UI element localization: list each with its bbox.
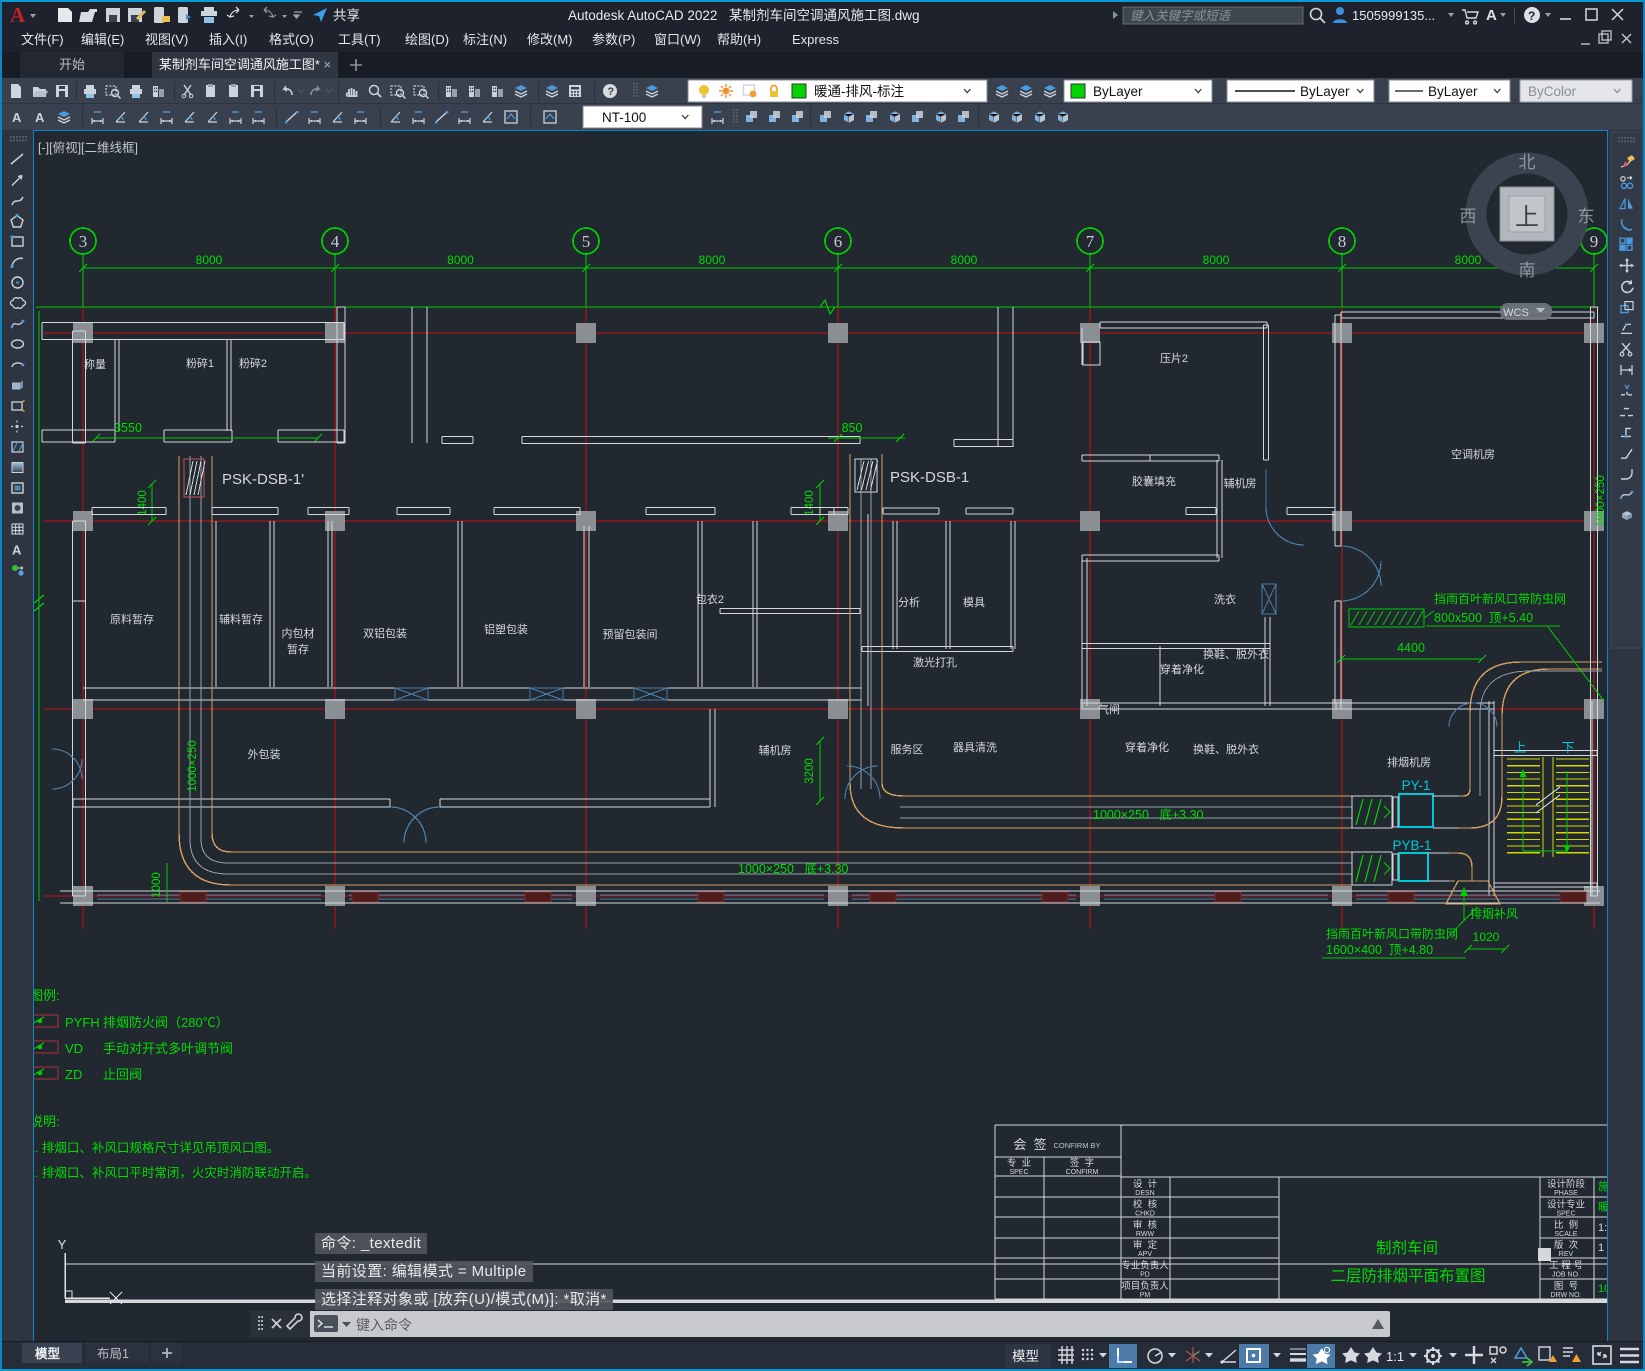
svg-text:模型: 模型 bbox=[35, 1346, 61, 1361]
svg-text:分析: 分析 bbox=[898, 595, 920, 609]
svg-text:ByLayer: ByLayer bbox=[1093, 84, 1143, 99]
svg-text:NT-100: NT-100 bbox=[602, 110, 646, 125]
svg-text:Autodesk AutoCAD 2022: Autodesk AutoCAD 2022 bbox=[568, 8, 717, 23]
svg-text:图例:: 图例: bbox=[34, 988, 60, 1003]
svg-text:1400: 1400 bbox=[137, 490, 149, 516]
svg-text:SPEC: SPEC bbox=[1009, 1169, 1028, 1176]
svg-text:1:: 1: bbox=[1598, 1222, 1607, 1234]
svg-text:8000: 8000 bbox=[196, 253, 223, 267]
svg-text:A: A bbox=[12, 543, 22, 558]
svg-text:ByLayer: ByLayer bbox=[1300, 84, 1350, 99]
svg-text:粉碎1: 粉碎1 bbox=[186, 356, 214, 370]
svg-text:1400: 1400 bbox=[804, 490, 816, 516]
svg-text:气闸: 气闸 bbox=[1098, 702, 1120, 716]
svg-text:3200: 3200 bbox=[804, 758, 816, 784]
svg-text:上: 上 bbox=[1513, 740, 1526, 755]
svg-text:ByColor: ByColor bbox=[1528, 84, 1577, 99]
svg-text:1505999135...: 1505999135... bbox=[1352, 8, 1435, 23]
svg-text:PSK-DSB-1: PSK-DSB-1 bbox=[890, 469, 969, 486]
svg-text:二层防排烟平面布置图: 二层防排烟平面布置图 bbox=[1330, 1267, 1485, 1285]
svg-text:?: ? bbox=[607, 86, 614, 98]
svg-text:800x500 顶+5.40: 800x500 顶+5.40 bbox=[1434, 611, 1533, 625]
svg-text:西: 西 bbox=[1460, 207, 1477, 226]
svg-text:说明:: 说明: bbox=[34, 1114, 60, 1129]
svg-text:CHKD: CHKD bbox=[1135, 1210, 1155, 1217]
svg-text:8000: 8000 bbox=[951, 253, 978, 267]
svg-text:8000: 8000 bbox=[1455, 253, 1482, 267]
svg-text:会 签: 会 签 bbox=[1013, 1137, 1046, 1152]
svg-text:键入关键字或短语: 键入关键字或短语 bbox=[1130, 9, 1233, 23]
svg-text:A: A bbox=[12, 110, 22, 125]
svg-text:洗衣: 洗衣 bbox=[1214, 592, 1236, 606]
svg-text:东: 东 bbox=[1578, 207, 1595, 226]
svg-text:A: A bbox=[10, 3, 26, 27]
svg-text:1600×400 顶+4.80: 1600×400 顶+4.80 bbox=[1326, 943, 1433, 957]
svg-text:辅料暂存: 辅料暂存 bbox=[219, 612, 263, 626]
svg-text:压片2: 压片2 bbox=[1160, 352, 1188, 365]
svg-text:REV: REV bbox=[1559, 1251, 1574, 1258]
svg-text:CONFIRM: CONFIRM bbox=[1066, 1169, 1099, 1176]
svg-text:1000×250 底+3.30: 1000×250 底+3.30 bbox=[1093, 807, 1204, 822]
svg-text:工 程 号: 工 程 号 bbox=[1549, 1261, 1583, 1272]
svg-text:专业负责人: 专业负责人 bbox=[1121, 1260, 1169, 1272]
svg-text:比 例: 比 例 bbox=[1554, 1219, 1578, 1231]
svg-text:3550: 3550 bbox=[114, 421, 142, 435]
svg-text:PD: PD bbox=[1140, 1272, 1150, 1279]
svg-text:服务区: 服务区 bbox=[891, 743, 924, 756]
svg-text:Y: Y bbox=[58, 1237, 67, 1252]
svg-text:6: 6 bbox=[834, 232, 843, 251]
svg-text:北: 北 bbox=[1519, 153, 1536, 172]
svg-text:审 核: 审 核 bbox=[1133, 1219, 1158, 1231]
svg-text:专 业: 专 业 bbox=[1007, 1157, 1031, 1169]
svg-text:ZD: ZD bbox=[65, 1067, 82, 1082]
svg-text:手动对开式多叶调节阀: 手动对开式多叶调节阀 bbox=[103, 1041, 233, 1056]
svg-text:某制剂车间空调通风施工图.dwg: 某制剂车间空调通风施工图.dwg bbox=[729, 7, 920, 23]
svg-text:挡雨百叶新风口带防虫网: 挡雨百叶新风口带防虫网 bbox=[1326, 926, 1458, 941]
svg-text:[-][俯视][二维线框]: [-][俯视][二维线框] bbox=[38, 140, 138, 155]
svg-text:JOB NO.: JOB NO. bbox=[1552, 1272, 1580, 1279]
svg-text:南: 南 bbox=[1519, 261, 1536, 280]
svg-text:穿着净化: 穿着净化 bbox=[1160, 662, 1204, 676]
svg-text:?: ? bbox=[1528, 9, 1535, 23]
svg-text:RWW: RWW bbox=[1136, 1231, 1155, 1238]
svg-text:穿着净化: 穿着净化 bbox=[1125, 740, 1169, 754]
svg-text:称量: 称量 bbox=[84, 357, 106, 371]
svg-text:下: 下 bbox=[1561, 740, 1574, 755]
svg-text:止回阀: 止回阀 bbox=[103, 1067, 142, 1082]
svg-text:包衣2: 包衣2 bbox=[696, 592, 724, 606]
svg-text:VD: VD bbox=[65, 1041, 83, 1056]
svg-text:9: 9 bbox=[1590, 232, 1599, 251]
svg-text:换鞋、脱外衣: 换鞋、脱外衣 bbox=[1203, 647, 1269, 661]
svg-text:胶囊填充: 胶囊填充 bbox=[1132, 474, 1176, 488]
svg-text:4: 4 bbox=[331, 232, 340, 251]
svg-text:DRW NO.: DRW NO. bbox=[1551, 1292, 1582, 1299]
svg-text:8: 8 bbox=[1338, 232, 1347, 251]
svg-text:DESN: DESN bbox=[1135, 1190, 1154, 1197]
svg-text:1: 1 bbox=[1598, 1242, 1604, 1254]
svg-text:8000: 8000 bbox=[1203, 253, 1230, 267]
svg-text:激光打孔: 激光打孔 bbox=[913, 655, 957, 669]
svg-text:850: 850 bbox=[842, 421, 863, 435]
svg-text:1000×250 底+3.30: 1000×250 底+3.30 bbox=[738, 861, 849, 876]
svg-text:制剂车间: 制剂车间 bbox=[1376, 1239, 1438, 1257]
svg-text:辅机房: 辅机房 bbox=[1224, 476, 1257, 490]
svg-text:PY-1: PY-1 bbox=[1402, 778, 1431, 793]
svg-text:设计专业: 设计专业 bbox=[1547, 1198, 1585, 1210]
svg-text:排烟补风: 排烟补风 bbox=[1470, 907, 1518, 921]
svg-text:布局1: 布局1 bbox=[97, 1347, 129, 1361]
svg-text:PYB-1: PYB-1 bbox=[1392, 838, 1431, 853]
svg-text:换鞋、脱外衣: 换鞋、脱外衣 bbox=[1193, 742, 1259, 756]
svg-text:设 计: 设 计 bbox=[1133, 1178, 1158, 1190]
svg-text:铝塑包装: 铝塑包装 bbox=[484, 622, 528, 636]
svg-text:模型: 模型 bbox=[1012, 1349, 1039, 1364]
svg-text:签 字: 签 字 bbox=[1070, 1157, 1094, 1169]
svg-text:排烟防火阀（280℃）: 排烟防火阀（280℃） bbox=[103, 1015, 229, 1030]
svg-text:5: 5 bbox=[582, 232, 591, 251]
svg-text:暖: 暖 bbox=[1598, 1200, 1607, 1213]
svg-text:7: 7 bbox=[1086, 232, 1095, 251]
svg-text:A: A bbox=[1486, 7, 1497, 24]
svg-text:项目负责人: 项目负责人 bbox=[1121, 1280, 1169, 1292]
svg-text:挡雨百叶新风口带防虫网: 挡雨百叶新风口带防虫网 bbox=[1434, 591, 1566, 606]
svg-text:WCS: WCS bbox=[1503, 307, 1529, 319]
svg-text:SCALE: SCALE bbox=[1555, 1231, 1578, 1238]
svg-text:8000: 8000 bbox=[447, 253, 474, 267]
svg-text:暂存: 暂存 bbox=[287, 642, 309, 656]
svg-text:辅机房: 辅机房 bbox=[759, 743, 792, 757]
svg-text:内包材: 内包材 bbox=[282, 626, 315, 640]
svg-text:CONFIRM BY: CONFIRM BY bbox=[1053, 1141, 1100, 1150]
svg-text:设计阶段: 设计阶段 bbox=[1547, 1178, 1586, 1190]
svg-text:施: 施 bbox=[1598, 1180, 1607, 1193]
svg-text:4400: 4400 bbox=[1397, 641, 1425, 655]
svg-text:PM: PM bbox=[1140, 1292, 1151, 1299]
svg-text:1. 排烟口、补风口规格尺寸详见吊顶风口图。: 1. 排烟口、补风口规格尺寸详见吊顶风口图。 bbox=[34, 1140, 279, 1155]
svg-text:排烟机房: 排烟机房 bbox=[1387, 755, 1431, 769]
svg-text:上: 上 bbox=[1515, 204, 1539, 231]
svg-text:8000: 8000 bbox=[699, 253, 726, 267]
svg-text:模具: 模具 bbox=[963, 596, 985, 609]
svg-text:图 号: 图 号 bbox=[1554, 1281, 1578, 1292]
svg-text:粉碎2: 粉碎2 bbox=[239, 356, 267, 370]
svg-text:暖通-排风-标注: 暖通-排风-标注 bbox=[814, 84, 904, 99]
svg-text:APV: APV bbox=[1138, 1251, 1152, 1258]
svg-text:SPEC: SPEC bbox=[1556, 1210, 1575, 1217]
svg-text:1000×250: 1000×250 bbox=[187, 740, 199, 792]
svg-text:原料暂存: 原料暂存 bbox=[110, 612, 154, 626]
svg-text:2. 排烟口、补风口平时常闭，火灾时消防联动开启。: 2. 排烟口、补风口平时常闭，火灾时消防联动开启。 bbox=[34, 1165, 317, 1180]
svg-text:审 定: 审 定 bbox=[1133, 1239, 1158, 1251]
svg-text:1000×250: 1000×250 bbox=[1595, 475, 1607, 527]
svg-text:ByLayer: ByLayer bbox=[1428, 84, 1478, 99]
svg-text:外包装: 外包装 bbox=[248, 748, 281, 761]
svg-text:PYFH: PYFH bbox=[65, 1015, 100, 1030]
svg-text:器具清洗: 器具清洗 bbox=[953, 741, 997, 754]
svg-text:1020: 1020 bbox=[1473, 930, 1500, 944]
svg-text:共享: 共享 bbox=[333, 7, 360, 23]
svg-text:10: 10 bbox=[1598, 1283, 1607, 1295]
svg-text:PHASE: PHASE bbox=[1554, 1190, 1578, 1197]
svg-text:双铝包装: 双铝包装 bbox=[363, 626, 407, 640]
svg-text:PSK-DSB-1': PSK-DSB-1' bbox=[222, 471, 304, 488]
svg-text:3: 3 bbox=[79, 232, 88, 251]
svg-text:1:1: 1:1 bbox=[1386, 1349, 1404, 1364]
svg-text:预留包装间: 预留包装间 bbox=[603, 628, 658, 641]
svg-text:1000: 1000 bbox=[151, 872, 163, 898]
svg-text:版 次: 版 次 bbox=[1554, 1239, 1579, 1251]
svg-text:空调机房: 空调机房 bbox=[1451, 447, 1495, 461]
svg-text:校 核: 校 核 bbox=[1133, 1198, 1158, 1210]
svg-text:A: A bbox=[35, 110, 45, 125]
